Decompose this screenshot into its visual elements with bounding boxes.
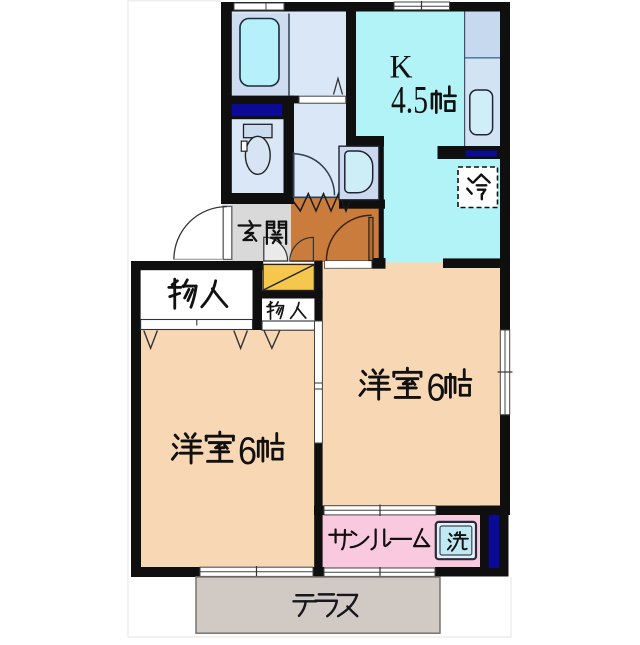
svg-text:6: 6	[238, 430, 257, 473]
svg-text:6: 6	[427, 366, 446, 409]
svg-text:4.5: 4.5	[391, 79, 428, 122]
